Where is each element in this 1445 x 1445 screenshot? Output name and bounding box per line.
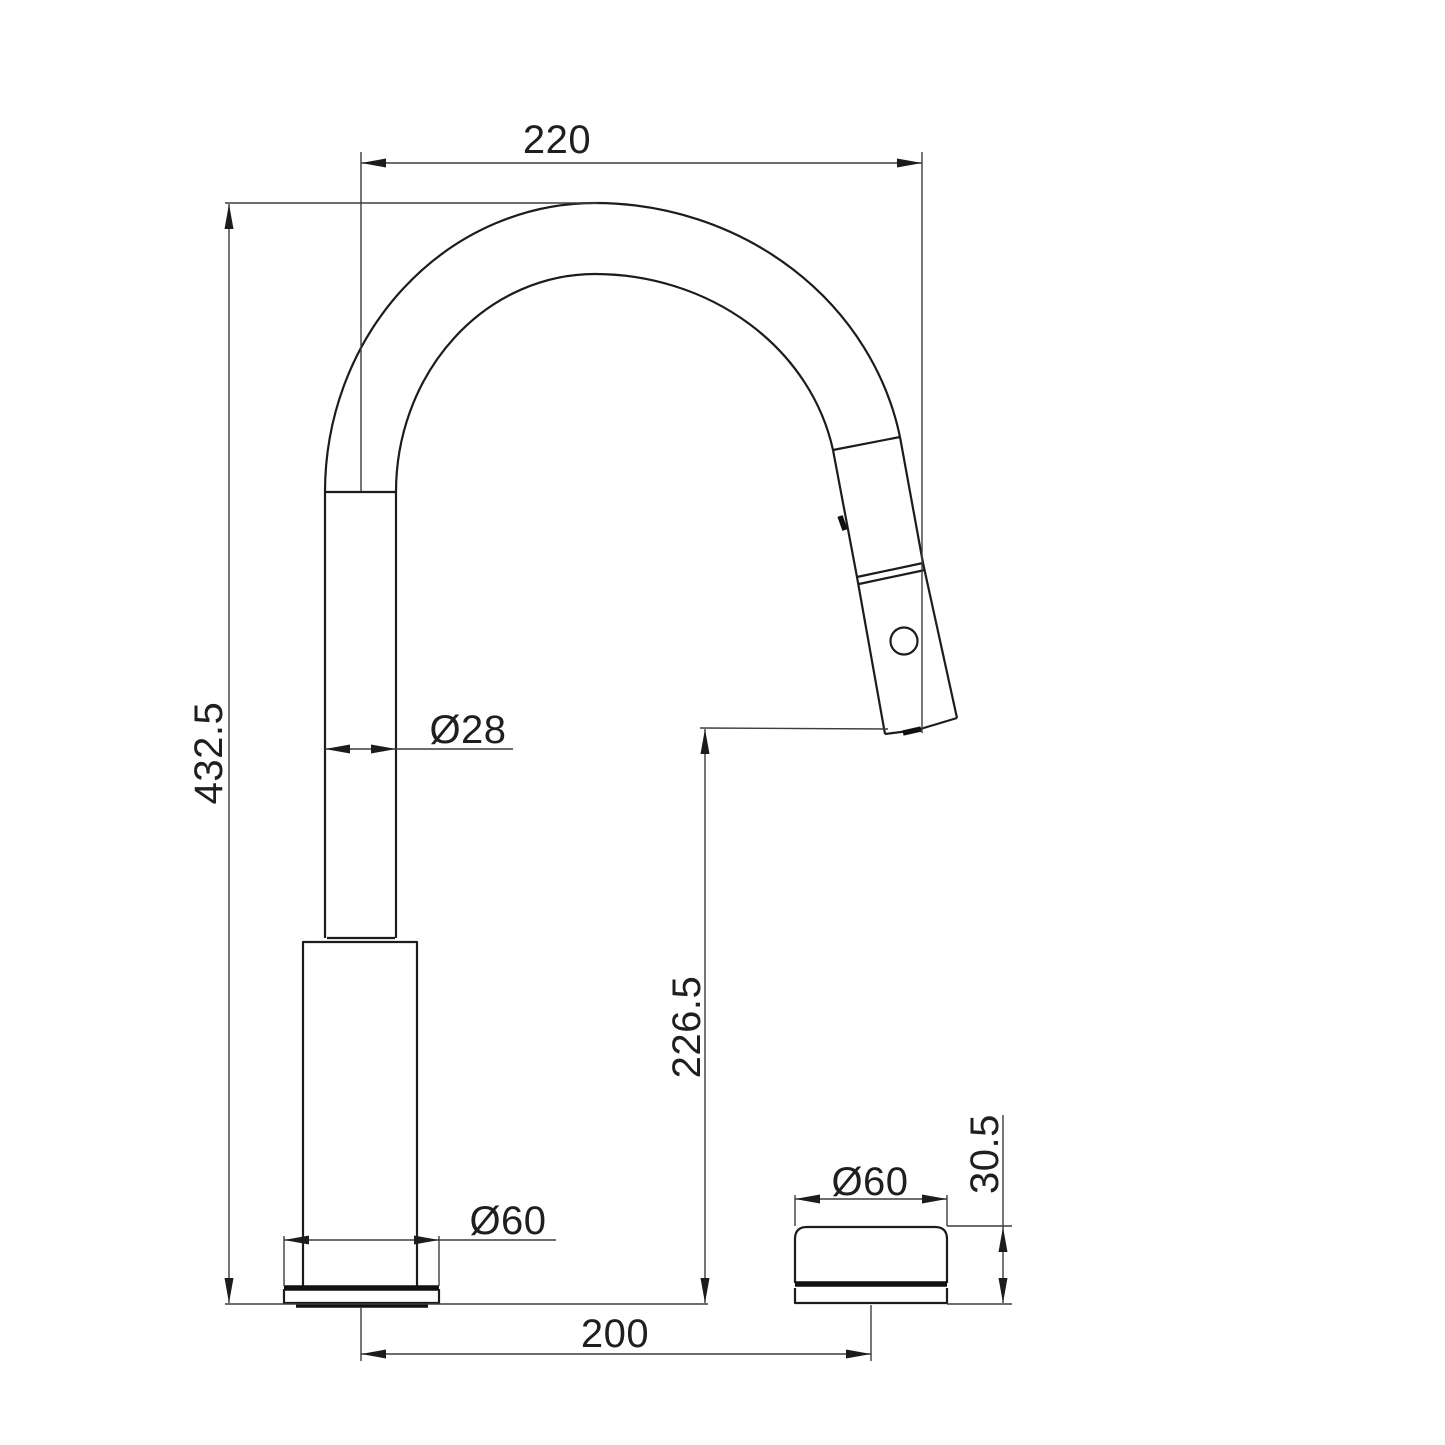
arrow-base-diameter-right <box>414 1236 439 1245</box>
spout-outer-curve <box>325 203 900 492</box>
spray-head-side-clip <box>840 516 845 530</box>
dimension-labels: 220 432.5 Ø28 226.5 Ø60 200 Ø60 30.5 <box>187 118 1007 1356</box>
handle-upper-outline <box>795 1227 947 1283</box>
spout-inner-curve <box>396 274 833 492</box>
faucet-body-outline <box>284 203 957 1305</box>
spray-head-left-edge <box>833 450 885 734</box>
arrow-spout-reach-left <box>361 159 386 168</box>
label-spout-reach: 220 <box>523 118 591 162</box>
ext-outlet-height-top <box>700 728 888 729</box>
arrow-tube-diameter-right <box>371 745 396 754</box>
label-centres-distance: 200 <box>581 1312 649 1356</box>
label-spout-tube-diameter: Ø28 <box>429 708 506 752</box>
handle-lower-outline <box>795 1288 947 1303</box>
label-base-diameter: Ø60 <box>469 1199 546 1243</box>
arrow-overall-height-top <box>225 204 234 229</box>
arrow-centres-left <box>361 1350 386 1359</box>
arrow-outlet-height-bottom <box>701 1278 710 1303</box>
base-cylinder-outline <box>303 942 417 1286</box>
arrow-handle-height-bottom <box>999 1278 1008 1303</box>
arrow-outlet-height-top <box>701 729 710 754</box>
arrow-base-diameter-left <box>284 1236 309 1245</box>
label-outlet-height: 226.5 <box>665 976 709 1079</box>
faucet-dimension-drawing: 220 432.5 Ø28 226.5 Ø60 200 Ø60 30.5 <box>0 0 1445 1445</box>
base-flange-outline <box>284 1289 439 1303</box>
label-handle-height: 30.5 <box>963 1114 1007 1194</box>
technical-drawing-canvas: 220 432.5 Ø28 226.5 Ø60 200 Ø60 30.5 <box>0 0 1445 1445</box>
spray-head-right-edge <box>900 437 957 718</box>
label-overall-height: 432.5 <box>187 702 231 805</box>
label-handle-diameter: Ø60 <box>831 1160 908 1204</box>
arrow-spout-reach-right <box>897 159 922 168</box>
arrow-handle-diameter-left <box>795 1195 820 1204</box>
spray-head-mid-seam-lower <box>859 570 925 584</box>
spray-head-aerator-mark <box>903 729 921 733</box>
arrow-tube-diameter-left <box>325 745 350 754</box>
spray-head-button <box>891 628 918 655</box>
arrow-handle-diameter-right <box>922 1195 947 1204</box>
spray-head-top-seam <box>833 437 900 450</box>
arrow-overall-height-bottom <box>225 1278 234 1303</box>
arrow-centres-right <box>846 1350 871 1359</box>
arrow-handle-height-top <box>999 1227 1008 1252</box>
spray-head-mid-seam-upper <box>857 563 923 577</box>
